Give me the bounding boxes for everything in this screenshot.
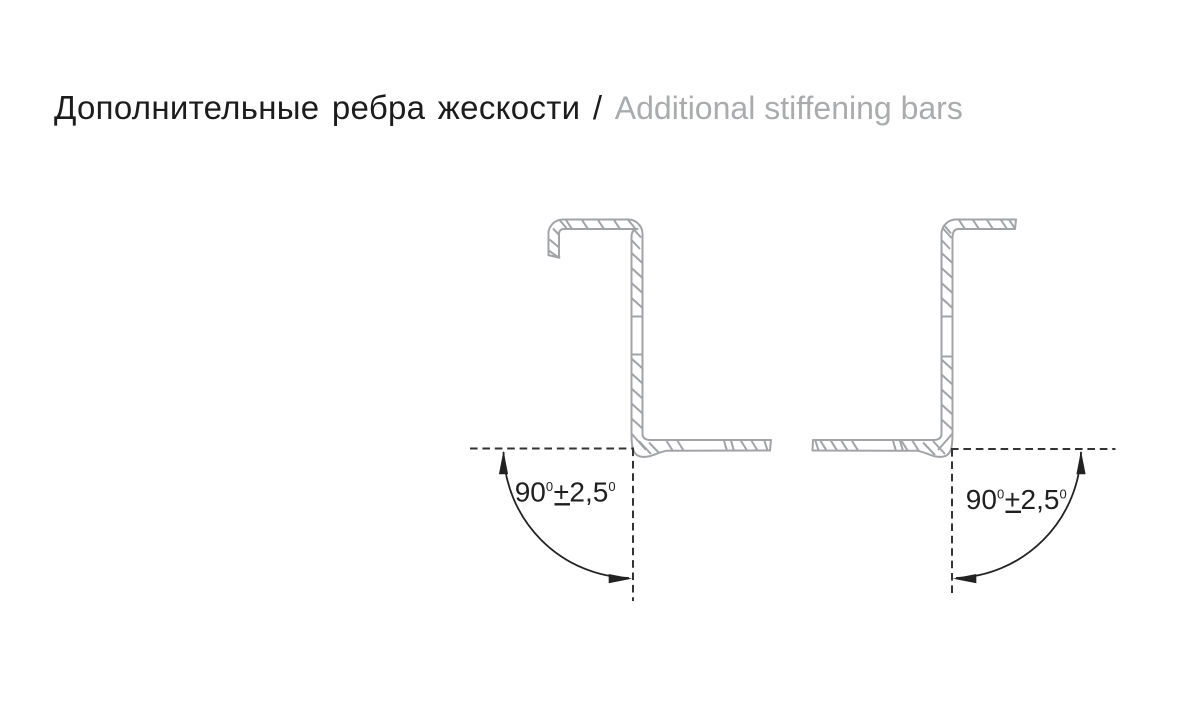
svg-text:900+2,50: 900+2,50 xyxy=(515,477,616,508)
svg-text:900+2,50: 900+2,50 xyxy=(966,484,1067,515)
